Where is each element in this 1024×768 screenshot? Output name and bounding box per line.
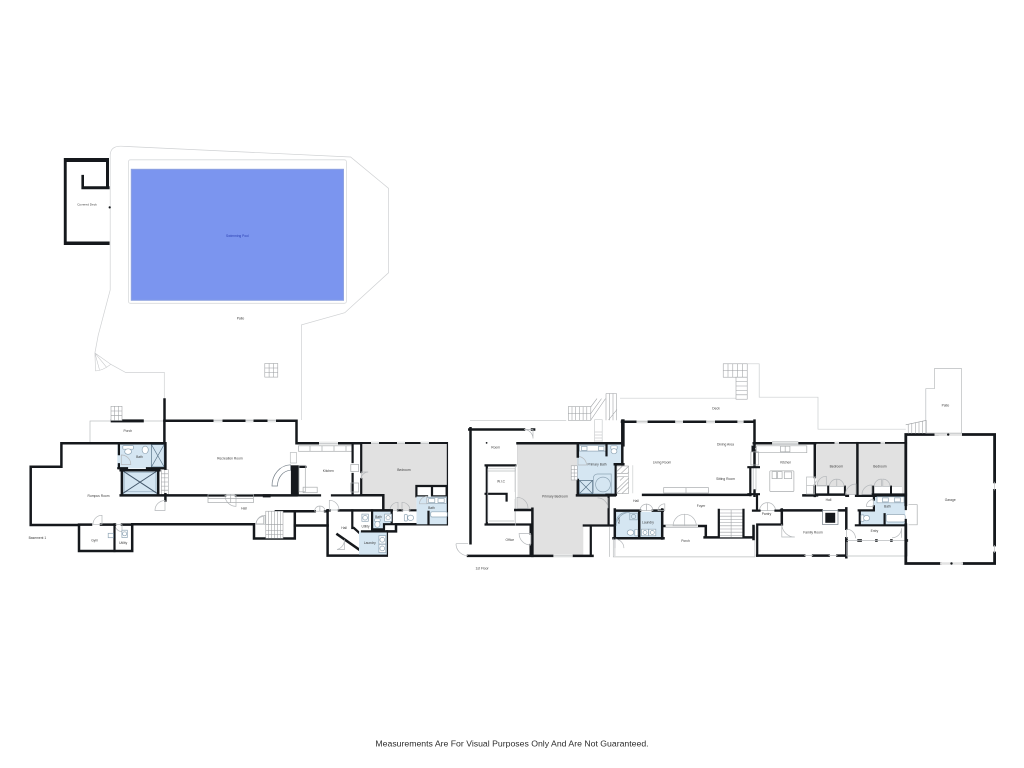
svg-text:Gym: Gym [91, 539, 98, 543]
svg-text:Office: Office [506, 538, 515, 542]
svg-text:Entry: Entry [871, 529, 879, 533]
svg-text:Patio: Patio [942, 404, 950, 408]
svg-text:Pantry: Pantry [762, 512, 772, 516]
svg-text:Rumpus Room: Rumpus Room [88, 494, 110, 498]
svg-text:Garage: Garage [945, 498, 956, 502]
svg-text:Bath: Bath [136, 455, 143, 459]
svg-text:Swimming Pool: Swimming Pool [226, 234, 249, 238]
svg-text:Laundry: Laundry [642, 521, 654, 525]
svg-text:W.I.C: W.I.C [497, 480, 506, 484]
svg-text:Utility: Utility [119, 541, 127, 545]
svg-text:Family Room: Family Room [803, 531, 823, 535]
svg-text:Living Room: Living Room [653, 461, 672, 465]
svg-text:Deck: Deck [712, 407, 720, 411]
svg-text:Hall: Hall [633, 499, 639, 503]
svg-text:Bedroom: Bedroom [830, 464, 844, 468]
svg-text:Porch: Porch [123, 429, 132, 433]
svg-text:1st Floor: 1st Floor [476, 567, 490, 571]
svg-text:Utility: Utility [361, 524, 369, 528]
svg-text:Dining Area: Dining Area [717, 443, 734, 447]
svg-text:Hall: Hall [241, 507, 247, 511]
svg-text:Laundry: Laundry [364, 541, 376, 545]
svg-text:Room: Room [491, 445, 500, 449]
svg-text:Primary Bath: Primary Bath [587, 462, 606, 466]
svg-text:Bedroom: Bedroom [873, 464, 887, 468]
svg-text:Bath: Bath [428, 506, 435, 510]
svg-text:Hall: Hall [826, 498, 832, 502]
svg-text:Bath: Bath [884, 505, 891, 509]
svg-text:Covered Deck: Covered Deck [77, 202, 97, 206]
svg-text:Primary Bedroom: Primary Bedroom [542, 494, 568, 498]
svg-text:Porch: Porch [681, 539, 690, 543]
svg-text:Bath: Bath [375, 515, 382, 519]
svg-text:Measurements Are For Visual Pu: Measurements Are For Visual Purposes Onl… [375, 739, 648, 749]
svg-text:Bath: Bath [617, 517, 621, 524]
svg-text:Recreation Room: Recreation Room [217, 457, 243, 461]
svg-text:Hall: Hall [341, 526, 347, 530]
svg-text:Bedroom: Bedroom [397, 468, 411, 472]
svg-text:Basement 1: Basement 1 [29, 536, 47, 540]
svg-text:Kitchen: Kitchen [780, 460, 791, 464]
svg-text:Patio: Patio [237, 317, 245, 321]
svg-text:Sitting Room: Sitting Room [716, 477, 735, 481]
svg-text:Kitchen: Kitchen [323, 469, 334, 473]
svg-text:Foyer: Foyer [697, 504, 706, 508]
